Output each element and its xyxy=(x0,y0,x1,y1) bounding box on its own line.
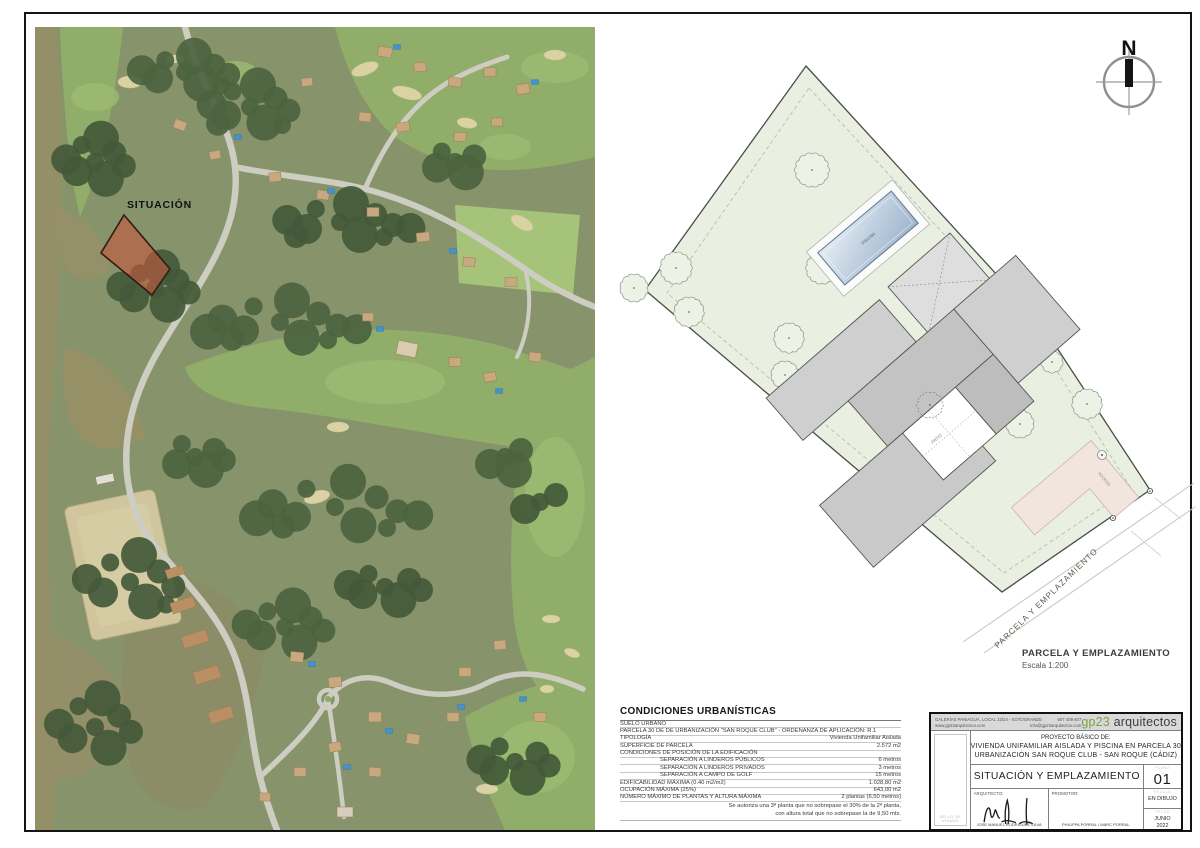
promoter-label: PROMOTOR: xyxy=(1049,789,1143,796)
scale-box: ESCALA EN DIBUJO xyxy=(1144,789,1181,809)
neighbor-fence-line xyxy=(1131,498,1181,556)
plan-caption: PARCELA Y EMPLAZAMIENTO Escala 1:200 xyxy=(1022,648,1170,670)
office-info: GALERÍAS PANIAGUA, LOCAL 23/24 - SOTOGRA… xyxy=(935,717,1081,728)
conditions-note-line1: Se autoriza una 3ª planta que no sobrepa… xyxy=(620,803,901,810)
scale-value: EN DIBUJO xyxy=(1144,796,1181,802)
plan-caption-title: PARCELA Y EMPLAZAMIENTO xyxy=(1022,648,1170,659)
date-box: FECHA JUNIO 2022 xyxy=(1144,809,1181,829)
logo-arquitectos: arquitectos xyxy=(1114,715,1177,729)
aerial-terrain xyxy=(35,27,595,830)
patio-tree-center xyxy=(929,404,931,406)
conditions-note-line2: con altura total que no sobrepase la de … xyxy=(620,811,901,818)
sello-label: SELLO DE VISADO xyxy=(935,815,966,823)
plano-label: PLANO xyxy=(1144,766,1181,770)
conditions-rows: SUELO URBANOPARCELA 30 DE DE URBANIZACIÓ… xyxy=(620,721,901,802)
site-plan: ACCESO PATIO PISCINA xyxy=(610,28,1195,678)
office-email: info@gp23arquitectos.com xyxy=(1030,723,1081,728)
utility-circle-dot xyxy=(1101,454,1103,456)
title-block: GALERÍAS PANIAGUA, LOCAL 23/24 - SOTOGRA… xyxy=(929,712,1183,831)
office-web: www.gp23arquitectos.com xyxy=(935,723,985,728)
architect-box: ARQUITECTO: JOSE MANUEL RODRIGUEZ SILVA xyxy=(971,789,1049,829)
date-label: FECHA xyxy=(1144,810,1181,814)
sheet-title: SITUACIÓN Y EMPLAZAMIENTO xyxy=(971,765,1144,789)
conditions-note: Se autoriza una 3ª planta que no sobrepa… xyxy=(620,803,901,820)
sello-column: SELLO DE VISADO xyxy=(931,731,971,829)
logo-gp23: gp23 xyxy=(1081,715,1110,729)
conditions-title: CONDICIONES URBANÍSTICAS xyxy=(620,706,901,721)
condition-row: NÚMERO MÁXIMO DE PLANTAS Y ALTURA MÁXIMA… xyxy=(620,795,901,802)
promoter-box: PROMOTOR: PHILIPPA PORRAL / MARC PORRAL xyxy=(1049,789,1144,829)
conditions-table: CONDICIONES URBANÍSTICAS SUELO URBANOPAR… xyxy=(620,706,901,821)
sello-box: SELLO DE VISADO xyxy=(934,734,967,826)
situacion-label: SITUACIÓN xyxy=(127,198,192,211)
logo: gp23 arquitectos xyxy=(1081,715,1177,729)
architect-name: JOSE MANUEL RODRIGUEZ SILVA xyxy=(971,822,1048,827)
sheet-number-box: PLANO 01 xyxy=(1144,765,1181,789)
plan-caption-scale: Escala 1:200 xyxy=(1022,661,1170,670)
drawing-sheet: SITUACIÓN ACCESO PATIO xyxy=(0,0,1200,848)
compass-needle xyxy=(1125,59,1133,87)
office-phone: 607 409 607 xyxy=(1057,717,1081,722)
office-address: GALERÍAS PANIAGUA, LOCAL 23/24 - SOTOGRA… xyxy=(935,717,1042,722)
project-title: PROYECTO BÁSICO DE: VIVIENDA UNIFAMILIAR… xyxy=(971,731,1181,765)
scale-label: ESCALA xyxy=(1144,790,1181,794)
project-heading: PROYECTO BÁSICO DE: xyxy=(971,734,1181,742)
project-line1: VIVIENDA UNIFAMILIAR AISLADA Y PISCINA E… xyxy=(971,742,1181,751)
date-year: 2022 xyxy=(1144,823,1181,829)
promoter-name: PHILIPPA PORRAL / MARC PORRAL xyxy=(1049,822,1143,827)
title-block-header: GALERÍAS PANIAGUA, LOCAL 23/24 - SOTOGRA… xyxy=(931,714,1181,731)
sheet-number: 01 xyxy=(1144,771,1181,788)
project-line2: URBANIZACIÓN SAN ROQUE CLUB - SAN ROQUE … xyxy=(971,751,1181,760)
north-arrow: N xyxy=(1096,37,1162,115)
aerial-photo: SITUACIÓN xyxy=(35,27,595,830)
